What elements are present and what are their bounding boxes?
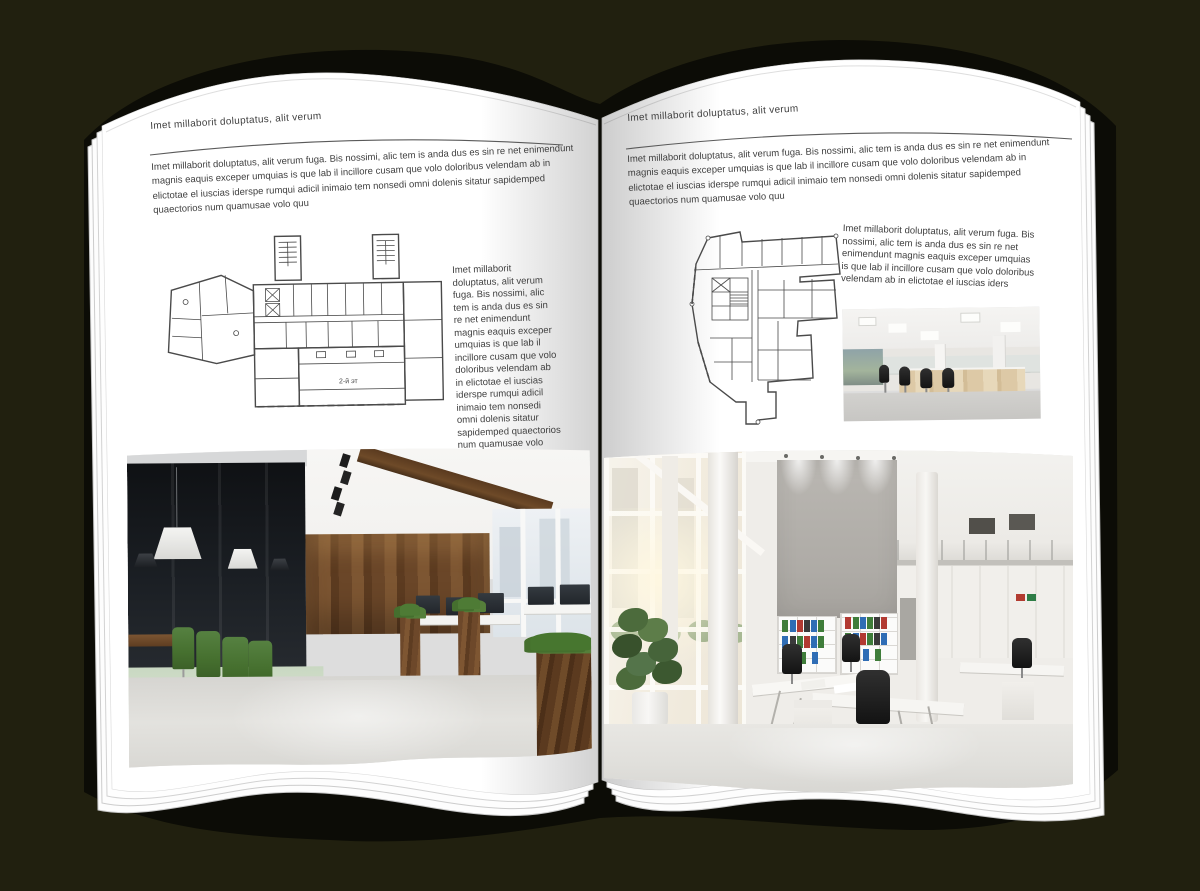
office-chair: [920, 368, 932, 388]
column-front: [708, 448, 738, 758]
column-right: [916, 472, 938, 722]
concrete-uplights: [777, 460, 897, 540]
green-chair: [196, 631, 220, 677]
mezzanine-vent: [969, 518, 995, 534]
magazine-mockup-scene: Imet millaborit doluptatus, alit verum I…: [0, 0, 1200, 891]
floor-light-band: [228, 679, 489, 771]
planter-grass: [400, 604, 420, 616]
ceiling-downlights: [784, 454, 788, 458]
left-floorplan-floor-label: 2-й эт: [339, 377, 359, 385]
right-floorplan-drawing: [648, 220, 846, 426]
monitor: [478, 593, 504, 613]
corner-planter-grass: [530, 632, 591, 650]
ceiling-light-panel-2: [960, 312, 980, 322]
left-office-photo: [127, 446, 592, 777]
right-small-office-photo: [842, 307, 1041, 422]
side-window-view: [843, 349, 883, 386]
office-chair: [782, 644, 802, 674]
office-chair: [879, 365, 889, 383]
right-atrium-photo: [604, 448, 1073, 792]
window-mullion: [555, 509, 561, 637]
ceiling-light-panel: [858, 317, 876, 326]
office-chair: [1012, 638, 1032, 668]
monitor: [528, 587, 554, 605]
binders: [782, 620, 788, 632]
office-chair: [899, 366, 910, 385]
window-mullion: [520, 509, 526, 637]
floor-sheen: [724, 728, 984, 784]
green-chair: [172, 627, 194, 669]
exit-signs: [1016, 594, 1025, 601]
binders: [845, 617, 851, 629]
sun-glare: [604, 508, 764, 668]
column-back: [662, 456, 678, 676]
office-chair: [842, 634, 860, 662]
desk-row-2: [524, 604, 591, 613]
monitor: [560, 584, 590, 604]
right-side-text: Imet millaborit doluptatus, alit verum f…: [841, 223, 1041, 293]
floor: [843, 391, 1040, 422]
doorway: [900, 598, 916, 660]
left-floorplan-drawing: 2-й эт: [154, 225, 449, 422]
planter-grass: [458, 597, 480, 609]
drawer-unit-right: [1002, 682, 1034, 720]
office-chair: [942, 368, 954, 388]
office-chair-foreground: [856, 670, 890, 724]
left-side-text: Imet millaborit doluptatus, alit verum f…: [452, 262, 562, 466]
